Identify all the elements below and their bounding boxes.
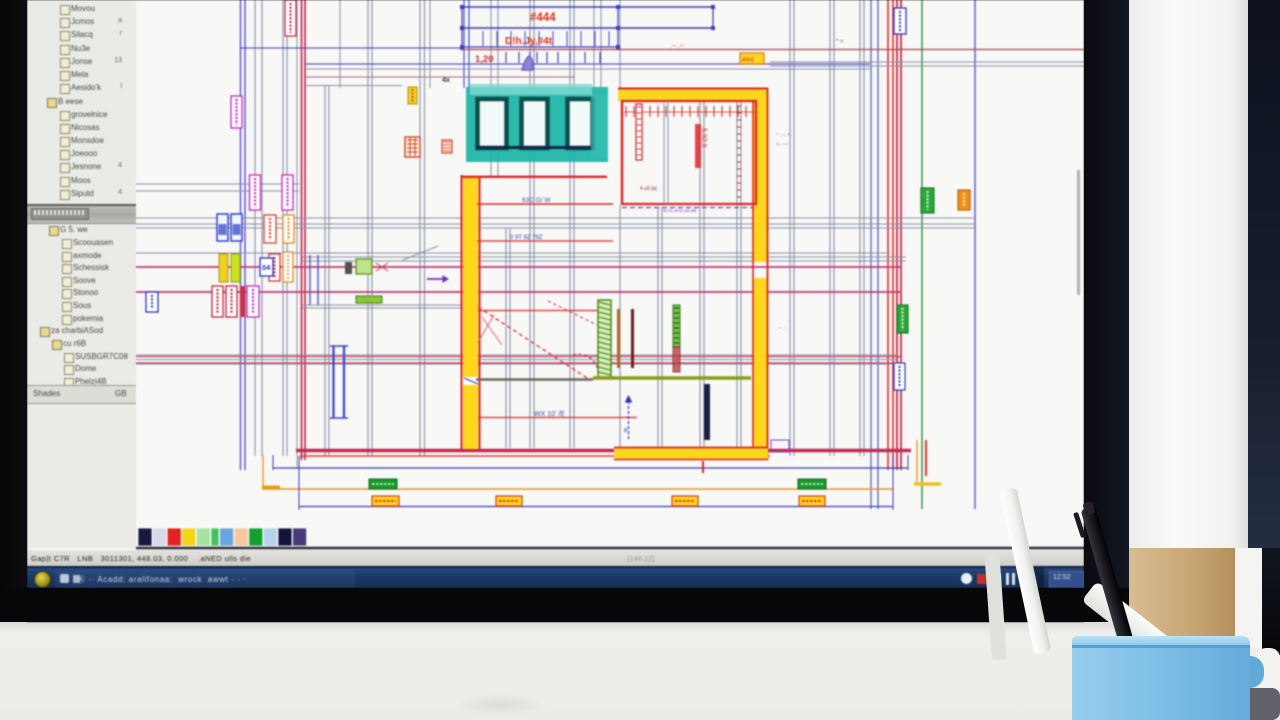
- svg-text:=- ~~ .: =- ~~ .: [776, 142, 791, 148]
- svg-text:WX 10' /E: WX 10' /E: [534, 411, 565, 418]
- svg-text:##4: ##4: [742, 57, 754, 64]
- svg-text:4 u0 {a|: 4 u0 {a|: [640, 186, 657, 192]
- svg-text:04: 04: [262, 263, 271, 272]
- svg-text:0 9T 8Z 78Z: 0 9T 8Z 78Z: [510, 235, 543, 241]
- svg-text:4x: 4x: [442, 77, 450, 84]
- svg-text:5,92.9: 5,92.9: [700, 128, 707, 148]
- svg-text:63C G/ W: 63C G/ W: [522, 197, 551, 204]
- svg-text:1,20: 1,20: [475, 54, 494, 65]
- svg-text:#444: #444: [530, 12, 556, 24]
- svg-text:D!h.Jy,#4t: D!h.Jy,#4t: [505, 36, 553, 47]
- svg-text:~ ..-, =.: ~ ..-, =.: [776, 132, 792, 138]
- svg-text:. ~ .:: . ~ .:: [776, 326, 786, 332]
- svg-text:.~..~: .~..~: [670, 43, 684, 50]
- svg-text:* =: * =: [836, 39, 844, 45]
- svg-text:4z-t1 w-t1-a4-wb: 4z-t1 w-t1-a4-wb: [663, 208, 697, 213]
